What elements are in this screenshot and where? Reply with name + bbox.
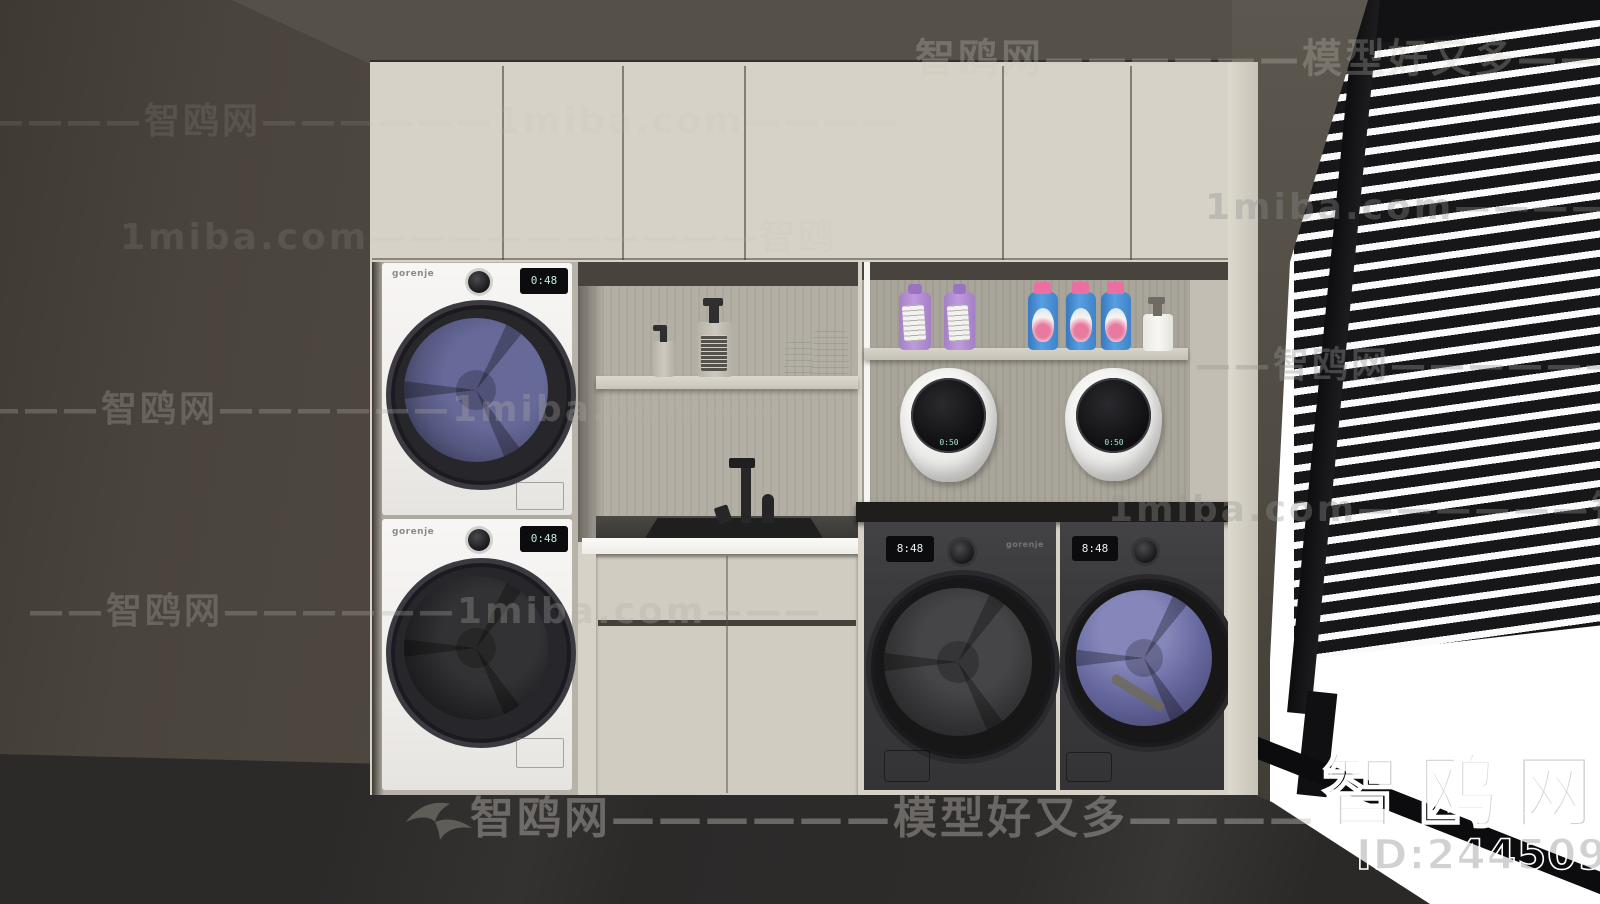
niche-highlight-sliver (864, 262, 870, 508)
bottle-label (902, 304, 926, 341)
cosmetic-jar (813, 331, 848, 355)
counter-front-edge (582, 538, 858, 554)
faucet (741, 463, 751, 523)
dark-dryer-knob (1134, 540, 1157, 563)
bottle-cap-pink (1107, 282, 1124, 294)
dark-washer-display: 8:48 (886, 536, 934, 562)
pump-bottle-label (701, 335, 727, 371)
dark-washer-brand: gorenje (1006, 540, 1044, 549)
sink-alcove-soffit (578, 262, 858, 286)
bottle-cap-pink (1072, 282, 1089, 294)
dark-dryer-drum (1076, 590, 1212, 726)
dark-washer-kickpanel (884, 750, 930, 782)
dryer-brand-label: gorenje (392, 527, 434, 537)
soap-pump-bottle (1143, 314, 1173, 351)
faucet-handle (762, 494, 774, 523)
upper-cabinet-seam (744, 66, 746, 260)
upper-cabinet-seam (622, 66, 624, 260)
cosmetic-jar (812, 355, 849, 377)
dryer-dispenser-drawer (516, 738, 564, 768)
washer-brand-label: gorenje (392, 269, 434, 279)
upper-cabinet-seam (1130, 66, 1132, 260)
bottle-label (1105, 308, 1127, 342)
wall-washer-niche-soffit (862, 262, 1232, 282)
bottle-label (947, 304, 970, 341)
dryer-display: 0:48 (520, 526, 568, 552)
washer-dispenser-drawer (516, 482, 564, 510)
pump-nozzle-icon (653, 325, 667, 331)
model-id-badge: ID:244509945 (1356, 830, 1600, 879)
bottle-cap (953, 284, 966, 294)
dark-washer-knob (950, 540, 974, 564)
upper-cabinet-bottom-edge (372, 258, 1230, 260)
dryer-knob (468, 529, 490, 551)
upper-cabinet-seam (502, 66, 504, 260)
bottle-label (1070, 308, 1092, 342)
pump-nozzle-icon (703, 298, 723, 306)
seagull-watermark-icon (404, 788, 474, 844)
laundry-room-render: 0:50 0:50 gorenje 0:48 gorenje 0:48 8:48… (0, 0, 1600, 904)
bottle-cap (908, 284, 922, 294)
dark-dryer-kickpanel (1066, 752, 1112, 782)
site-logo: 智鸥网 (1322, 728, 1600, 844)
cosmetic-jar (785, 342, 812, 360)
washer-display: 0:48 (520, 268, 568, 294)
dark-dryer-display: 8:48 (1072, 536, 1118, 561)
cabinet-side-panel (1228, 62, 1258, 795)
faucet-spout (729, 458, 755, 468)
mini-washer-display: 0:50 (1095, 438, 1133, 447)
bottle-cap-pink (1034, 282, 1051, 294)
dark-washer-drum (884, 588, 1032, 736)
alcove-shelf (596, 376, 858, 389)
washer-drum (404, 318, 548, 462)
base-cabinet-seam (726, 556, 728, 793)
upper-cabinet-seam (1002, 66, 1004, 260)
pump-nozzle-icon (1148, 297, 1165, 304)
dark-counter-slab (856, 502, 1232, 522)
sink-basin (645, 518, 823, 538)
dryer-drum (404, 576, 548, 720)
washer-knob (468, 271, 490, 293)
bottle-label (1032, 308, 1054, 342)
soap-pump-bottle (653, 341, 675, 377)
mini-washer-display: 0:50 (930, 438, 968, 447)
cosmetic-jar (784, 360, 813, 377)
niche-side-panel (1190, 280, 1232, 508)
sink-alcove-side-shadow (578, 286, 604, 542)
